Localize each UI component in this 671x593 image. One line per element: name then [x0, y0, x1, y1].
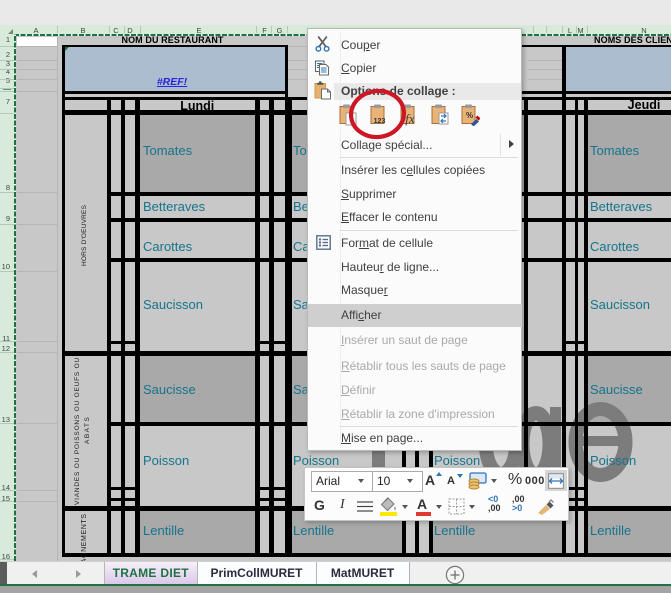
- svg-text:%: %: [466, 111, 473, 120]
